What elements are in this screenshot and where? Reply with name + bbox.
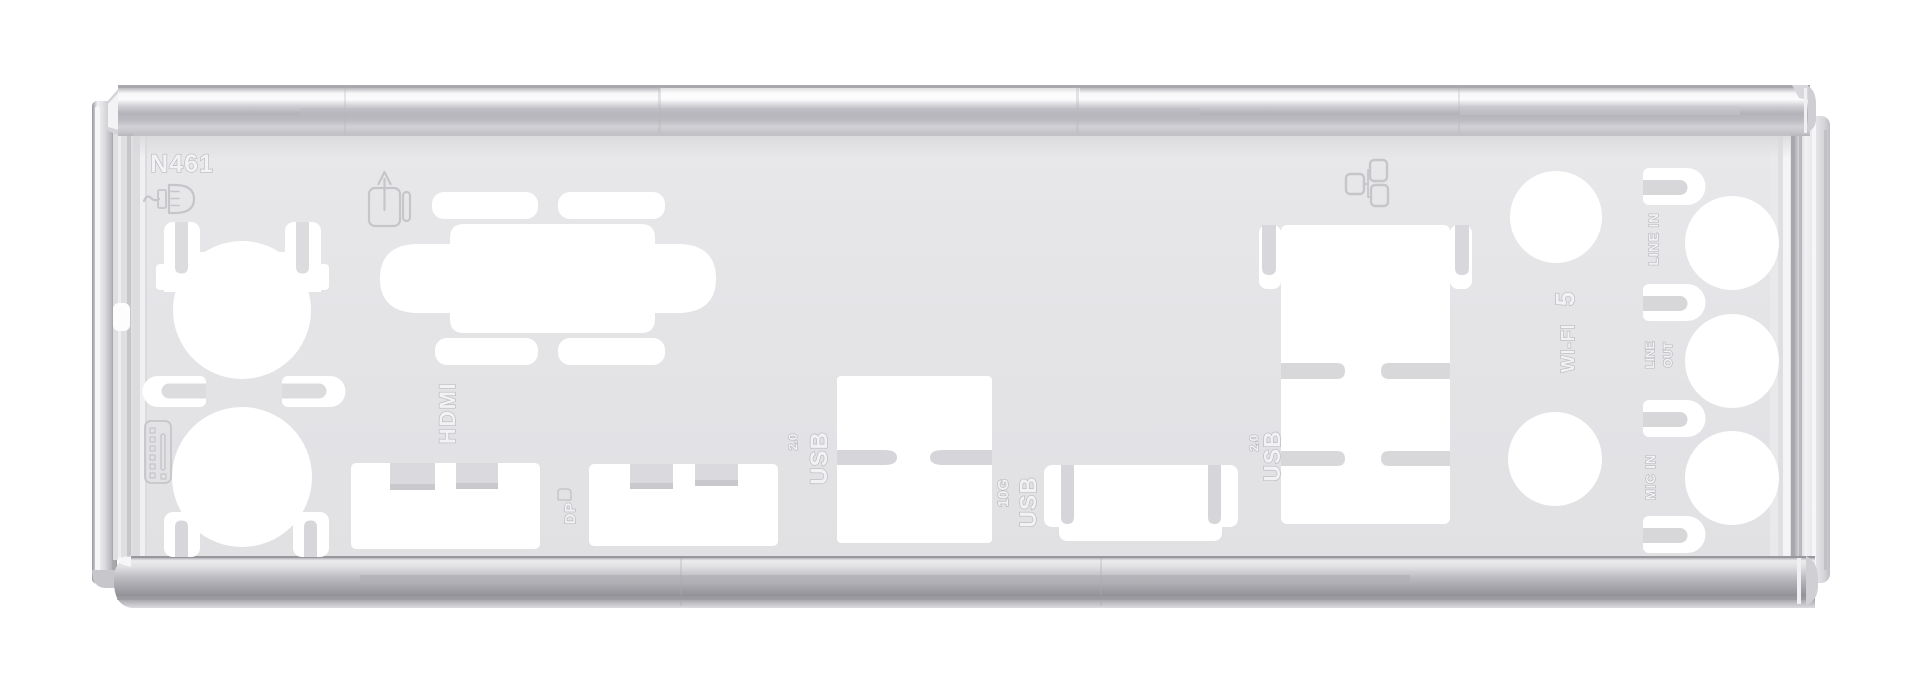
svg-text:5: 5	[1550, 292, 1580, 306]
svg-text:10G: 10G	[995, 479, 1012, 507]
svg-text:2.0: 2.0	[1247, 434, 1261, 451]
svg-text:USB: USB	[1015, 476, 1041, 528]
svg-text:2.0: 2.0	[786, 433, 800, 450]
svg-text:N461: N461	[150, 150, 214, 178]
svg-text:DP: DP	[562, 502, 579, 525]
svg-text:LINE IN: LINE IN	[1646, 212, 1661, 265]
svg-text:LINE: LINE	[1643, 341, 1657, 368]
svg-text:MIC IN: MIC IN	[1643, 454, 1658, 500]
svg-text:OUT: OUT	[1661, 342, 1675, 368]
svg-text:USB: USB	[1259, 430, 1285, 482]
svg-text:HDMI: HDMI	[435, 382, 460, 444]
svg-text:WI-FI: WI-FI	[1558, 324, 1578, 373]
svg-text:USB: USB	[806, 431, 833, 485]
